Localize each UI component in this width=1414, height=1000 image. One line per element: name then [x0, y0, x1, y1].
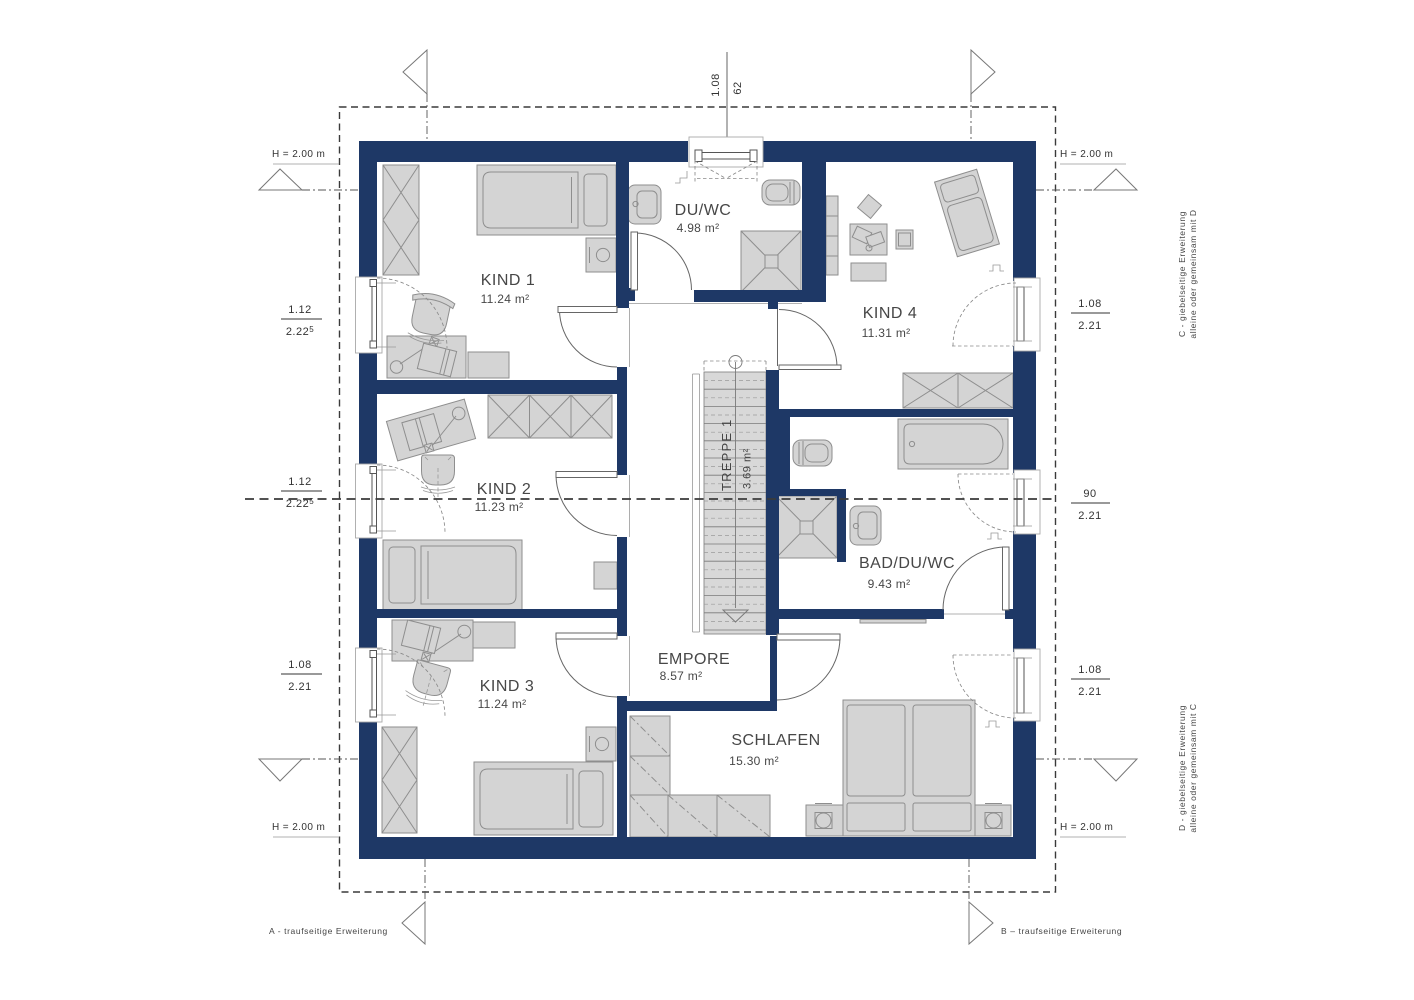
svg-text:C - giebelseitige Erweiterung: C - giebelseitige Erweiterung — [1177, 211, 1187, 337]
svg-text:1.08: 1.08 — [1078, 298, 1101, 310]
svg-text:alleine oder gemeinsam mit D: alleine oder gemeinsam mit D — [1188, 209, 1198, 338]
svg-text:KIND 2: KIND 2 — [477, 481, 532, 498]
svg-text:8.57 m²: 8.57 m² — [660, 669, 703, 683]
svg-text:11.24 m²: 11.24 m² — [481, 292, 530, 306]
svg-text:1.08: 1.08 — [288, 659, 311, 671]
svg-text:90: 90 — [1083, 488, 1096, 500]
svg-text:9.43 m²: 9.43 m² — [868, 577, 911, 591]
svg-text:2.21: 2.21 — [1078, 686, 1101, 698]
svg-text:A - traufseitige Erweiterung: A - traufseitige Erweiterung — [269, 926, 388, 936]
svg-text:EMPORE: EMPORE — [658, 651, 730, 668]
svg-text:2.21: 2.21 — [288, 681, 311, 693]
svg-text:15.30 m²: 15.30 m² — [729, 754, 779, 768]
svg-text:2.21: 2.21 — [1078, 510, 1101, 522]
svg-text:H = 2.00 m: H = 2.00 m — [272, 149, 325, 160]
svg-text:KIND 4: KIND 4 — [863, 305, 918, 322]
svg-text:1.08: 1.08 — [710, 73, 722, 96]
svg-text:3.69 m²: 3.69 m² — [742, 448, 754, 489]
svg-text:11.24 m²: 11.24 m² — [478, 697, 527, 711]
svg-text:11.31 m²: 11.31 m² — [862, 326, 911, 340]
svg-text:2.21: 2.21 — [1078, 320, 1101, 332]
svg-text:SCHLAFEN: SCHLAFEN — [731, 732, 820, 749]
svg-text:H = 2.00 m: H = 2.00 m — [1060, 822, 1113, 833]
svg-text:11.23 m²: 11.23 m² — [475, 500, 524, 514]
svg-text:1.08: 1.08 — [1078, 664, 1101, 676]
svg-text:H = 2.00 m: H = 2.00 m — [1060, 149, 1113, 160]
svg-text:4.98 m²: 4.98 m² — [677, 221, 720, 235]
svg-text:DU/WC: DU/WC — [675, 202, 732, 219]
svg-text:alleine oder gemeinsam mit C: alleine oder gemeinsam mit C — [1188, 703, 1198, 832]
svg-text:1.12: 1.12 — [288, 476, 311, 488]
svg-text:D - giebelseitige Erweiterung: D - giebelseitige Erweiterung — [1177, 705, 1187, 831]
svg-text:BAD/DU/WC: BAD/DU/WC — [859, 555, 955, 572]
svg-text:TREPPE 1: TREPPE 1 — [719, 419, 734, 491]
svg-text:KIND 1: KIND 1 — [481, 272, 536, 289]
svg-text:KIND 3: KIND 3 — [480, 678, 535, 695]
svg-text:1.12: 1.12 — [288, 304, 311, 316]
svg-text:H = 2.00 m: H = 2.00 m — [272, 822, 325, 833]
svg-text:62: 62 — [732, 81, 744, 94]
svg-text:B – traufseitige Erweiterung: B – traufseitige Erweiterung — [1001, 926, 1122, 936]
